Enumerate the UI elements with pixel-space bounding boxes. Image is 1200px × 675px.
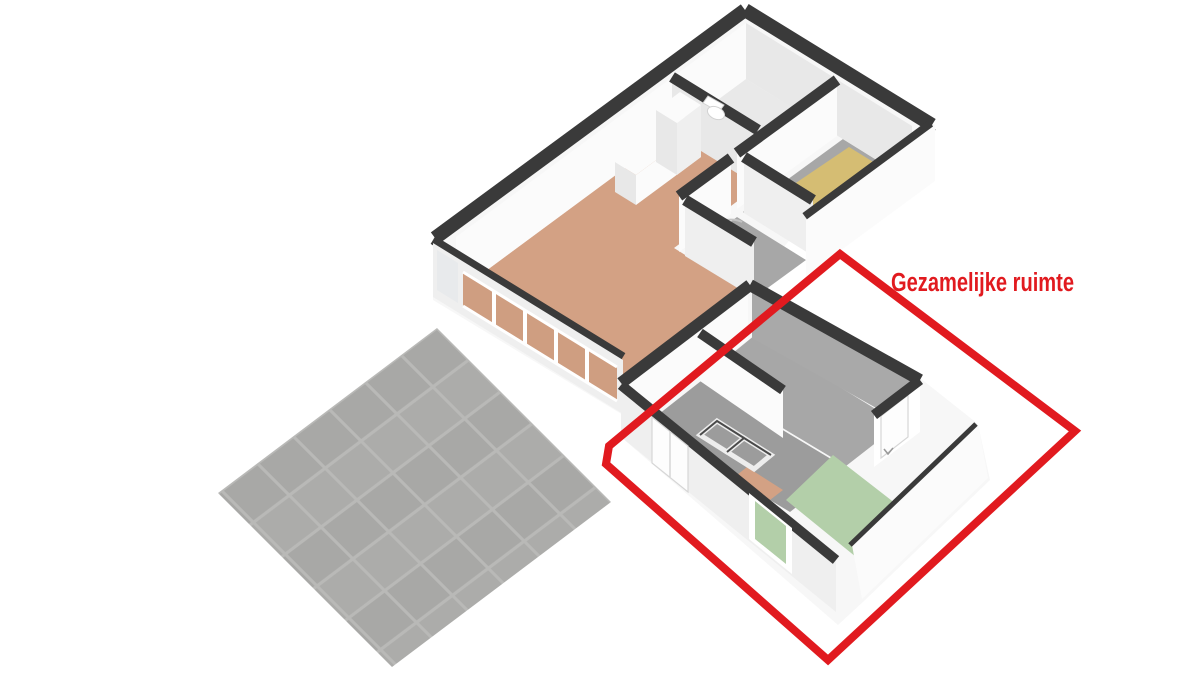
highlight-label: Gezamelijke ruimte xyxy=(891,269,1074,297)
floorplan-3d-render: Gezamelijke ruimte xyxy=(0,0,1200,675)
floorplan-page: Gezamelijke ruimte xyxy=(0,0,1200,675)
